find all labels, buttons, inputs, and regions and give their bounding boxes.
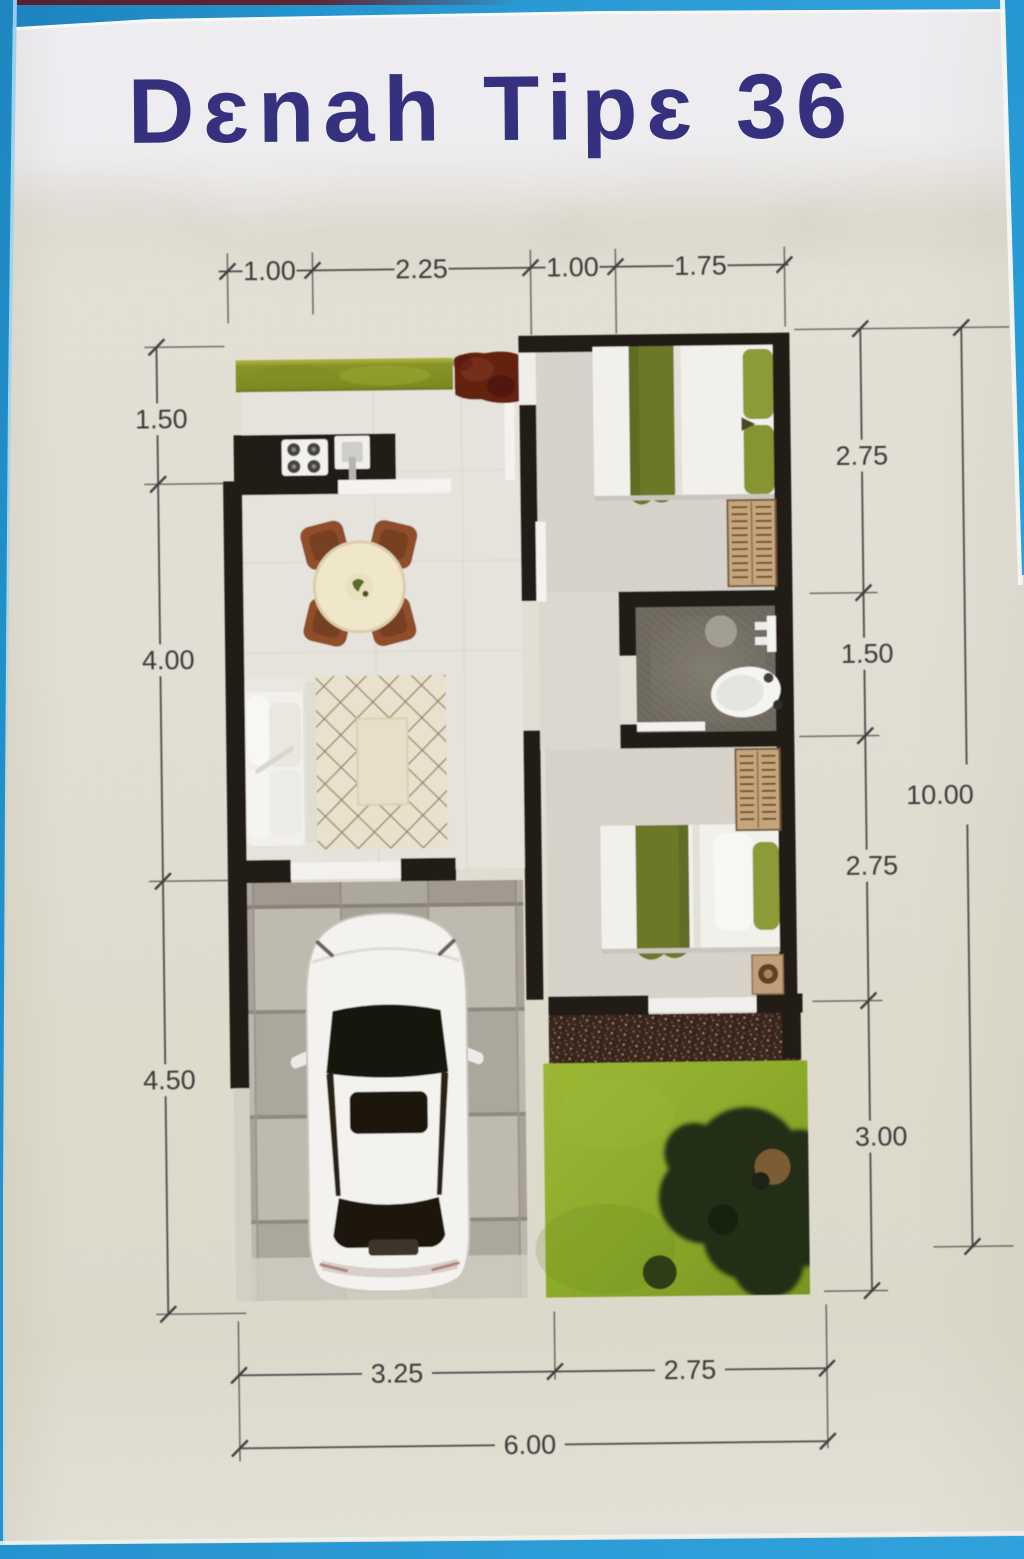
svg-text:2.75: 2.75 [845,850,898,881]
svg-text:1.00: 1.00 [243,256,296,287]
svg-text:2.75: 2.75 [835,440,888,471]
svg-text:2.25: 2.25 [395,254,448,285]
svg-text:2.75: 2.75 [664,1355,717,1386]
svg-text:10.00: 10.00 [906,779,974,810]
svg-text:1.75: 1.75 [674,250,727,281]
svg-text:3.25: 3.25 [371,1358,424,1389]
svg-text:4.00: 4.00 [142,645,195,676]
svg-text:6.00: 6.00 [503,1430,556,1461]
svg-text:1.50: 1.50 [135,404,188,435]
svg-text:4.50: 4.50 [143,1065,196,1096]
svg-text:1.50: 1.50 [841,638,894,669]
svg-text:3.00: 3.00 [855,1121,908,1152]
svg-text:1.00: 1.00 [546,252,599,283]
